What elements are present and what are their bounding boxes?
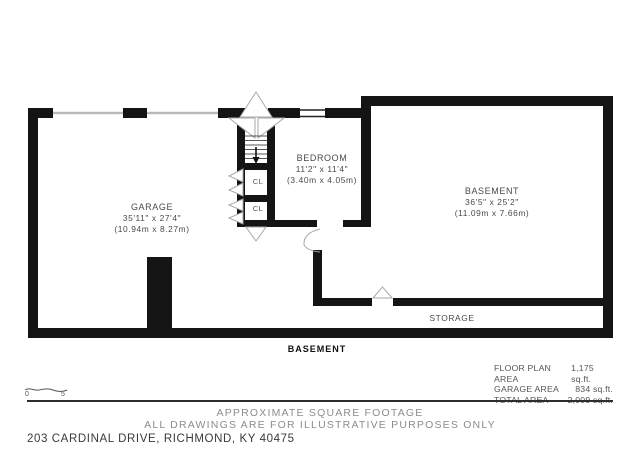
bedroom-top-wall-seg1 [268,108,300,118]
area-row-value: 834 sq.ft. [575,384,613,395]
bedroom-bottom-wall [343,220,371,227]
area-row-label: FLOOR PLAN AREA [494,363,571,384]
table-row: FLOOR PLAN AREA 1,175 sq.ft. [494,363,613,384]
property-address: 203 CARDINAL DRIVE, RICHMOND, KY 40475 [27,433,295,445]
right-exterior-wall [603,96,613,338]
left-exterior-wall [28,108,38,336]
garage-pillar-wall [147,257,172,336]
storage-label: STORAGE [412,313,492,324]
storage-name: STORAGE [412,313,492,324]
bottom-exterior-wall [28,328,613,338]
window-icon [300,110,325,117]
footer-divider [27,400,613,402]
basement-top-wall [363,96,613,106]
garage-dimensions-metric: (10.94m x 8.27m) [52,224,252,235]
floor-plan-title: BASEMENT [267,344,367,354]
scale-end-label: 5 [61,391,65,398]
table-row: GARAGE AREA 834 sq.ft. [494,384,613,395]
garage-dimensions-imperial: 35'11" x 27'4" [52,213,252,224]
footage-disclaimer-line2: ALL DRAWINGS ARE FOR ILLUSTRATIVE PURPOS… [0,419,640,431]
basement-label: BASEMENT 36'5" x 25'2" (11.09m x 7.66m) [422,186,562,219]
footage-disclaimer-line1: APPROXIMATE SQUARE FOOTAGE [0,407,640,419]
garage-top-wall-seg2 [123,108,147,118]
basement-dimensions-metric: (11.09m x 7.66m) [422,208,562,219]
storage-door-swing-icon [373,287,392,298]
basement-dimensions-imperial: 36'5" x 25'2" [422,197,562,208]
bedroom-label: BEDROOM 11'2" x 11'4" (3.40m x 4.05m) [252,153,392,186]
garage-label: GARAGE 35'11" x 27'4" (10.94m x 8.27m) [52,202,252,235]
area-row-value: 1,175 sq.ft. [571,363,613,384]
bedroom-door-swing-icon [304,229,320,252]
scale-start-label: 0 [25,391,29,398]
bedroom-top-wall-seg2 [325,108,363,118]
floor-plan-page: GARAGE 35'11" x 27'4" (10.94m x 8.27m) B… [0,0,640,452]
bedroom-dimensions-metric: (3.40m x 4.05m) [252,175,392,186]
garage-top-wall-seg3 [218,108,248,118]
bedroom-dimensions-imperial: 11'2" x 11'4" [252,164,392,175]
garage-top-wall-seg1 [28,108,53,118]
basement-name: BASEMENT [422,186,562,197]
storage-wall-right [393,298,603,306]
bedroom-name: BEDROOM [252,153,392,164]
closet1-label: CL [243,177,273,186]
storage-wall-left [313,298,372,306]
garage-name: GARAGE [52,202,252,213]
between-closets-wall [237,195,275,202]
closet2-label: CL [243,204,273,213]
area-row-label: GARAGE AREA [494,384,559,395]
